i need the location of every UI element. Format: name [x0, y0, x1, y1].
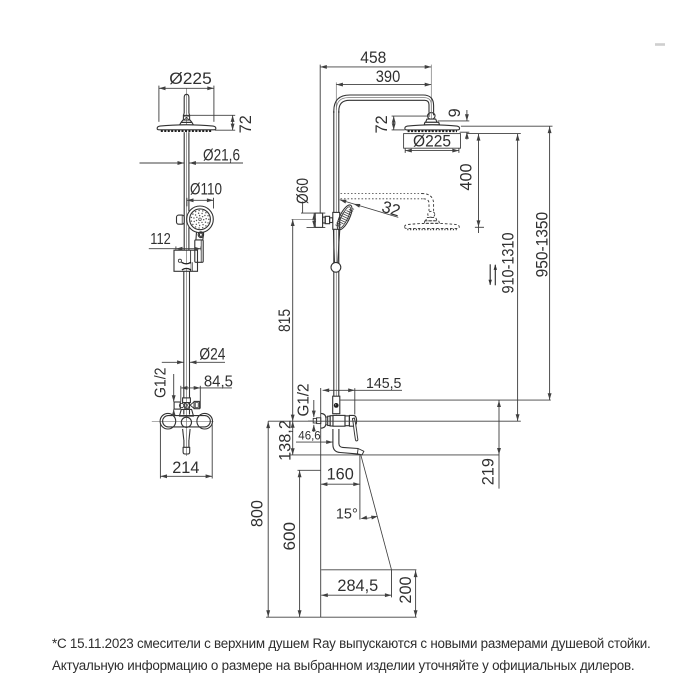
- svg-text:284,5: 284,5: [337, 577, 378, 595]
- svg-text:84,5: 84,5: [204, 373, 233, 390]
- svg-text:910-1310: 910-1310: [498, 233, 517, 294]
- svg-text:200: 200: [397, 576, 415, 603]
- svg-text:Ø225: Ø225: [413, 133, 451, 151]
- svg-text:950-1350: 950-1350: [532, 212, 551, 278]
- svg-text:112: 112: [150, 231, 171, 248]
- svg-text:Ø60: Ø60: [294, 178, 312, 204]
- svg-text:G1/2: G1/2: [153, 368, 170, 399]
- svg-text:46,6: 46,6: [298, 431, 320, 443]
- svg-text:214: 214: [172, 459, 199, 477]
- svg-text:G1/2: G1/2: [295, 384, 312, 417]
- svg-text:219: 219: [479, 458, 497, 485]
- svg-text:390: 390: [376, 68, 401, 86]
- svg-text:Ø24: Ø24: [199, 346, 225, 364]
- svg-text:Ø110: Ø110: [190, 180, 222, 198]
- svg-text:Ø21,6: Ø21,6: [203, 146, 240, 164]
- svg-text:458: 458: [360, 49, 386, 67]
- svg-text:9: 9: [446, 108, 464, 117]
- svg-text:400: 400: [457, 163, 475, 190]
- svg-text:Ø225: Ø225: [169, 70, 212, 88]
- svg-text:15°: 15°: [336, 506, 358, 522]
- svg-text:145,5: 145,5: [366, 375, 402, 392]
- svg-text:815: 815: [276, 309, 294, 332]
- svg-text:72: 72: [373, 115, 391, 133]
- svg-text:72: 72: [237, 115, 255, 133]
- svg-text:800: 800: [249, 500, 267, 527]
- svg-text:160: 160: [327, 465, 354, 483]
- svg-text:600: 600: [281, 522, 299, 551]
